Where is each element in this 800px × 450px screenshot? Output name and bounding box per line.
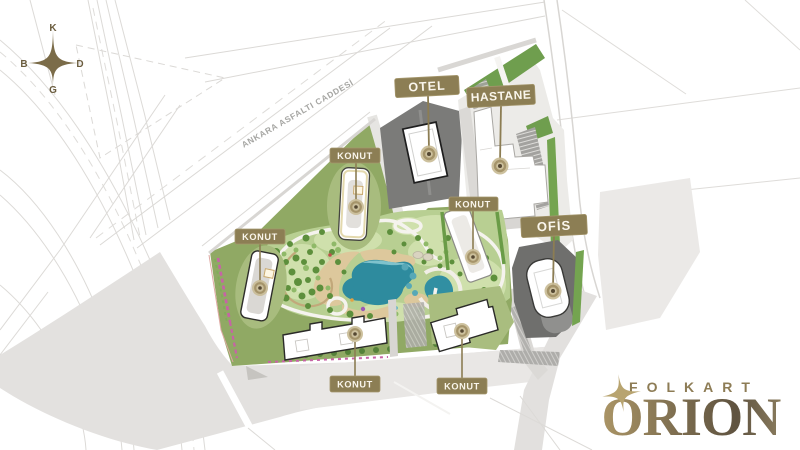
svg-text:D: D — [76, 59, 83, 70]
svg-text:KONUT: KONUT — [455, 200, 491, 210]
svg-text:G: G — [49, 85, 57, 96]
svg-text:ORION: ORION — [601, 387, 781, 447]
svg-text:KONUT: KONUT — [337, 151, 373, 161]
svg-text:KONUT: KONUT — [444, 382, 480, 392]
svg-text:OFİS: OFİS — [536, 218, 571, 235]
svg-text:K: K — [49, 23, 57, 34]
svg-text:OTEL: OTEL — [408, 79, 446, 95]
svg-text:B: B — [20, 59, 27, 70]
svg-text:KONUT: KONUT — [242, 232, 278, 242]
svg-text:KONUT: KONUT — [337, 380, 373, 390]
